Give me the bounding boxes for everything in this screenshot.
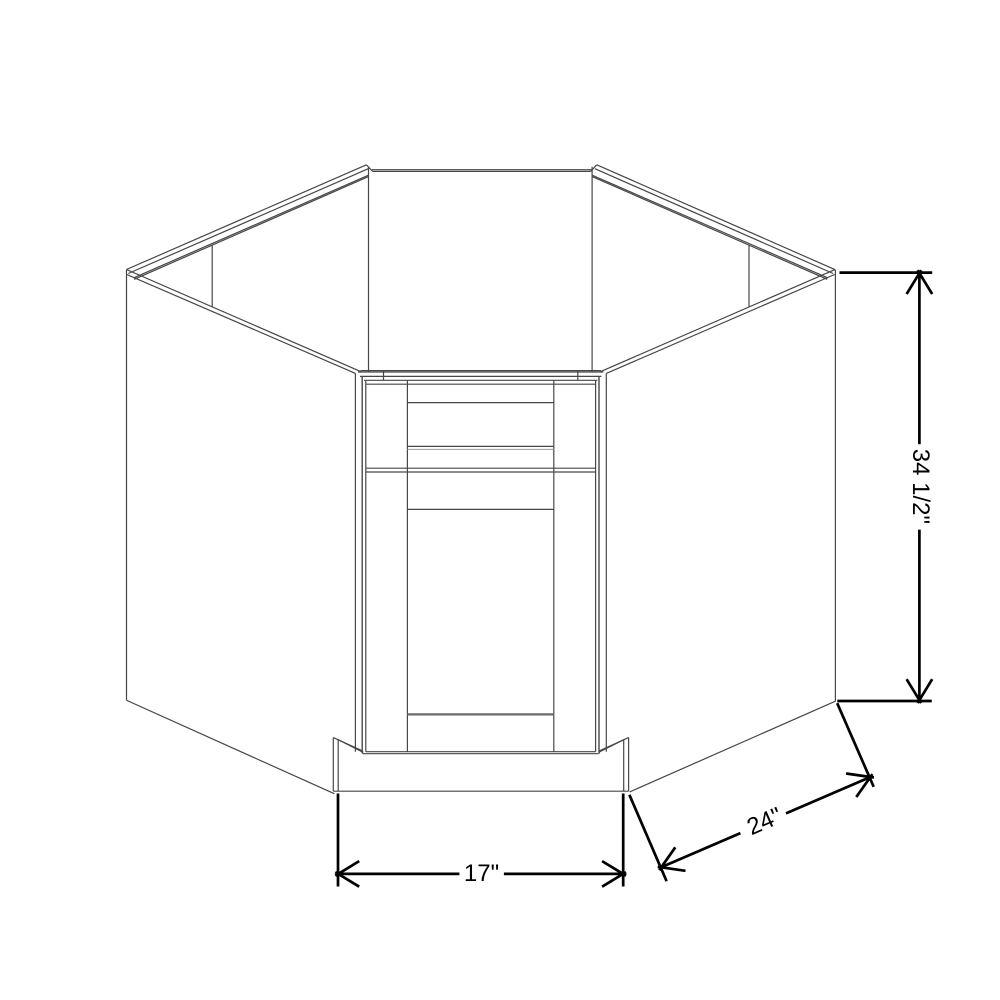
svg-text:17": 17" — [464, 860, 499, 887]
svg-text:34 1/2": 34 1/2" — [907, 449, 934, 524]
